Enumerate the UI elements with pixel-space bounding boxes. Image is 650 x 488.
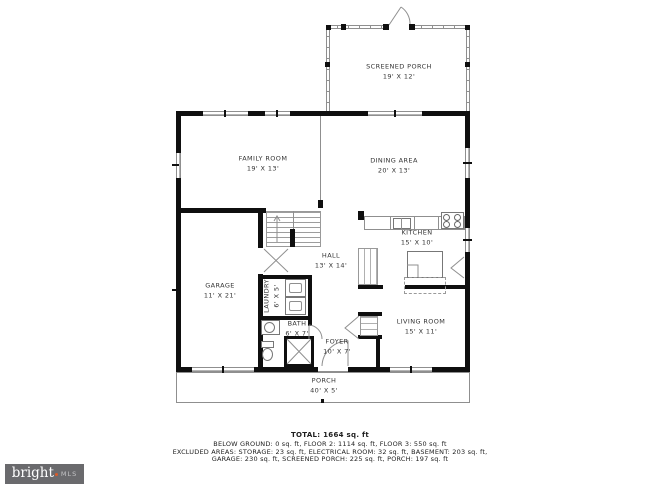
burner-icon <box>443 214 450 221</box>
room-name: LAUNDRY <box>262 279 272 313</box>
area-summary: TOTAL: 1664 sq. ft BELOW GROUND: 0 sq. f… <box>10 432 650 464</box>
room-name: PORCH <box>310 376 338 386</box>
porch-screen-wall-left <box>326 25 330 111</box>
dimension-tick <box>222 366 224 373</box>
kitchen-table-dashed <box>404 277 446 294</box>
room-dims: 6' X 5' <box>272 279 282 313</box>
room-label-garage: GARAGE 11' X 21' <box>204 281 236 301</box>
pantry <box>358 248 378 285</box>
living-closet-shelves <box>360 316 378 336</box>
room-label-bath: BATH 6' X 7' <box>285 319 308 339</box>
room-label-kitchen: KITCHEN 15' X 10' <box>401 228 433 248</box>
porch-screen-wall-top-right <box>410 25 470 29</box>
logo-spark-icon <box>55 473 58 476</box>
room-label-hall: HALL 13' X 14' <box>315 251 347 271</box>
room-name: FOYER <box>323 337 351 347</box>
wall-stub <box>318 200 323 208</box>
toilet-bowl <box>262 348 273 361</box>
room-label-foyer: FOYER 10' X 7' <box>323 337 351 357</box>
summary-total: TOTAL: 1664 sq. ft <box>10 432 650 440</box>
room-label-screened-porch: SCREENED PORCH 19' X 12' <box>366 62 432 82</box>
kitchen-island <box>407 251 443 278</box>
counter-divider <box>390 216 391 230</box>
room-divider-line <box>320 116 321 202</box>
wall <box>176 111 181 153</box>
wall <box>465 252 470 372</box>
porch-corner-post <box>326 25 331 30</box>
room-dims: 20' X 13' <box>370 166 418 176</box>
dimension-tick <box>321 399 324 403</box>
room-dims: 15' X 10' <box>401 238 433 248</box>
stair-newel-post <box>290 229 295 247</box>
room-label-dining-area: DINING AREA 20' X 13' <box>370 156 418 176</box>
logo-mls-label: MLS <box>61 470 77 478</box>
porch-door-leaf <box>389 7 401 25</box>
bright-mls-logo: brightMLS <box>5 464 84 484</box>
wall <box>290 111 368 116</box>
room-name: GARAGE <box>204 281 236 291</box>
fixture-lines-svg <box>0 0 650 488</box>
burner-icon <box>443 221 450 228</box>
room-dims: 40' X 5' <box>310 386 338 396</box>
dimension-tick <box>394 110 396 117</box>
room-name: SCREENED PORCH <box>366 62 432 72</box>
wall <box>258 208 263 248</box>
counter-divider <box>438 216 439 230</box>
room-name: BATH <box>285 319 308 329</box>
logo-wordmark: bright <box>12 467 54 481</box>
room-dims: 19' X 12' <box>366 72 432 82</box>
summary-line: GARAGE: 230 sq. ft, SCREENED PORCH: 225 … <box>10 456 650 464</box>
room-name: HALL <box>315 251 347 261</box>
wall <box>376 339 380 367</box>
room-name: KITCHEN <box>401 228 433 238</box>
porch-screen-wall-top-left <box>326 25 388 29</box>
dimension-tick <box>172 164 179 166</box>
dimension-tick <box>172 289 179 291</box>
room-name: DINING AREA <box>370 156 418 166</box>
porch-post <box>465 62 470 67</box>
washer-door <box>289 283 302 293</box>
room-dims: 6' X 7' <box>285 329 308 339</box>
wall <box>465 178 470 228</box>
floor-plan-canvas: SCREENED PORCH 19' X 12' FAMILY ROOM 19'… <box>0 0 650 488</box>
room-name: FAMILY ROOM <box>239 154 288 164</box>
porch-post <box>325 62 330 67</box>
dimension-tick <box>410 366 412 373</box>
garage-entry-double-door <box>264 249 288 272</box>
wall <box>358 285 383 289</box>
burner-icon <box>454 214 461 221</box>
porch-post <box>341 24 346 30</box>
porch-door-jamb <box>409 24 415 30</box>
dimension-tick <box>276 110 278 117</box>
porch-corner-post <box>465 25 470 30</box>
room-label-living-room: LIVING ROOM 15' X 11' <box>397 317 446 337</box>
room-dims: 13' X 14' <box>315 261 347 271</box>
wall <box>248 111 265 116</box>
room-label-laundry: LAUNDRY 6' X 5' <box>262 279 282 313</box>
toilet-tank <box>261 341 274 348</box>
wall <box>422 111 470 116</box>
porch-door-arc <box>401 7 410 24</box>
wall <box>176 208 266 213</box>
bath-sink-icon <box>264 322 275 333</box>
wall <box>465 111 470 148</box>
dimension-tick <box>463 239 472 241</box>
room-label-porch: PORCH 40' X 5' <box>310 376 338 396</box>
burner-icon <box>454 221 461 228</box>
dimension-tick <box>463 162 472 164</box>
room-dims: 10' X 7' <box>323 347 351 357</box>
room-name: LIVING ROOM <box>397 317 446 327</box>
room-dims: 11' X 21' <box>204 291 236 301</box>
storage-closet <box>284 336 314 367</box>
dryer-door <box>289 301 302 311</box>
room-dims: 19' X 13' <box>239 164 288 174</box>
room-label-family-room: FAMILY ROOM 19' X 13' <box>239 154 288 174</box>
room-dims: 15' X 11' <box>397 327 446 337</box>
porch-door-jamb <box>383 24 389 30</box>
dimension-tick <box>224 110 226 117</box>
porch-screen-wall-right <box>466 25 470 111</box>
kitchen-side-door <box>451 257 464 278</box>
living-room-door <box>345 316 359 339</box>
